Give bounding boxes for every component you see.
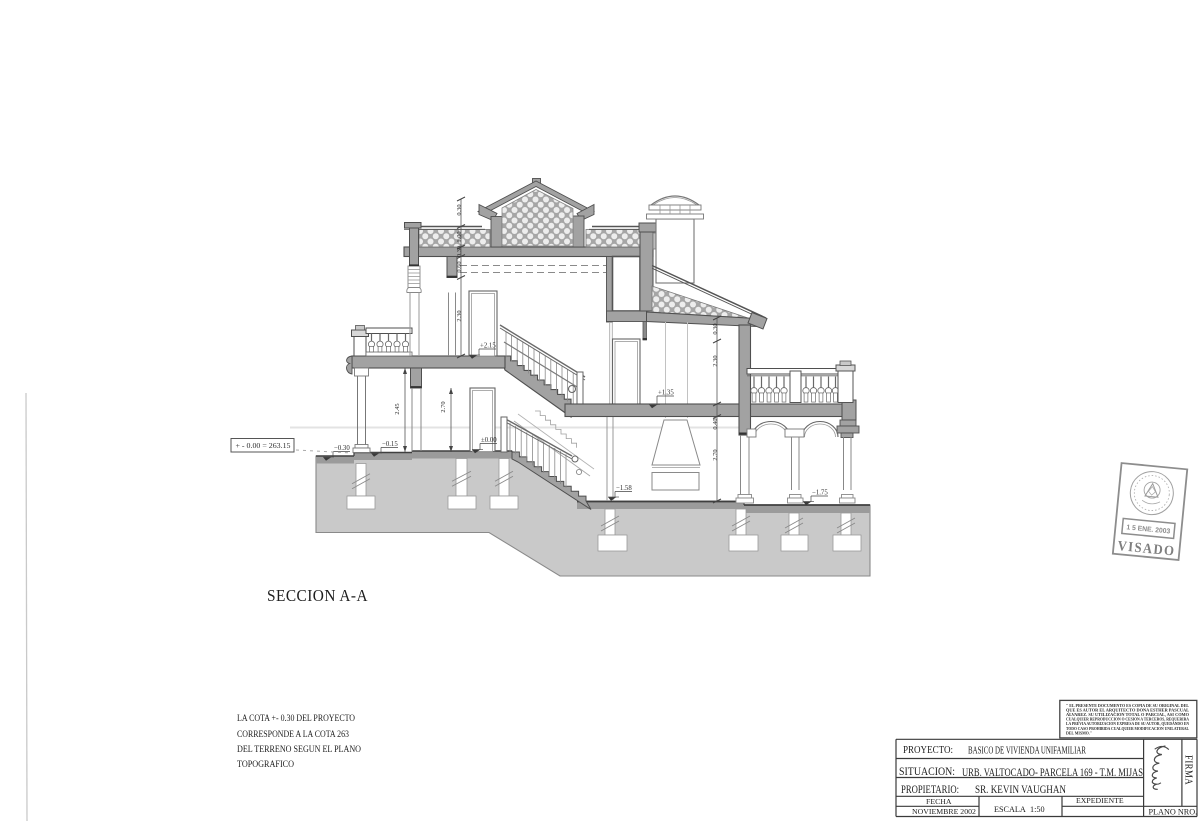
- svg-text:PROPIETARIO:: PROPIETARIO:: [901, 784, 959, 796]
- svg-text:ALVAREZ. SU UTILIZACION TOT: ALVAREZ. SU UTILIZACION TOTAL O PARCIAL,…: [1066, 713, 1189, 717]
- svg-text:0.40: 0.40: [712, 418, 719, 429]
- svg-text:−0.30: −0.30: [334, 445, 350, 452]
- svg-text:2.45: 2.45: [394, 403, 401, 414]
- svg-text:FIRMA: FIRMA: [1183, 755, 1194, 785]
- svg-text:" EL PRESENTE DOCUMENTO ES: " EL PRESENTE DOCUMENTO ES COPIA DE SU O…: [1066, 704, 1189, 708]
- svg-text:CORRESPONDE A LA COTA 263: CORRESPONDE A LA COTA 263: [237, 730, 349, 740]
- svg-text:0.30: 0.30: [456, 204, 463, 215]
- svg-text:0.30: 0.30: [456, 246, 463, 257]
- svg-text:LA PREVIA AUTORIZACION EXPR: LA PREVIA AUTORIZACION EXPRESA DE SU AUT…: [1066, 722, 1189, 726]
- svg-text:FECHA: FECHA: [926, 797, 952, 806]
- svg-text:PLANO NRO.: PLANO NRO.: [1149, 808, 1198, 817]
- svg-text:2.70: 2.70: [712, 449, 719, 460]
- svg-text:±0.00: ±0.00: [481, 437, 497, 444]
- svg-text:EXPEDIENTE: EXPEDIENTE: [1076, 796, 1124, 805]
- svg-text:SR. KEVIN VAUGHAN: SR. KEVIN VAUGHAN: [975, 784, 1067, 796]
- svg-text:1.00: 1.00: [456, 231, 463, 242]
- svg-text:QUE ES AUTOR EL ARQUITECTO: QUE ES AUTOR EL ARQUITECTO DONA ESTHER P…: [1066, 709, 1189, 713]
- svg-text:−0.15: −0.15: [382, 441, 398, 448]
- svg-text:1:50: 1:50: [1030, 805, 1045, 814]
- svg-text:TODO CASO PROHIBIDA CUALQUI: TODO CASO PROHIBIDA CUALQUIER MODIFICACI…: [1066, 727, 1189, 731]
- svg-text:0.30: 0.30: [712, 323, 719, 334]
- svg-text:0.60: 0.60: [456, 261, 463, 272]
- svg-text:2.30: 2.30: [712, 355, 719, 366]
- svg-text:2.30: 2.30: [456, 310, 463, 321]
- svg-text:SECCION A-A: SECCION A-A: [267, 586, 368, 605]
- svg-text:DEL MISMO.": DEL MISMO.": [1066, 731, 1092, 735]
- svg-text:+2.15: +2.15: [480, 343, 496, 350]
- svg-text:TOPOGRAFICO: TOPOGRAFICO: [237, 760, 294, 770]
- svg-text:LA COTA +- 0.30 DEL PROYECTO: LA COTA +- 0.30 DEL PROYECTO: [237, 714, 355, 724]
- svg-text:DEL TERRENO SEGUN EL PLANO: DEL TERRENO SEGUN EL PLANO: [237, 745, 361, 755]
- svg-text:PROYECTO:: PROYECTO:: [903, 745, 953, 756]
- svg-text:2.70: 2.70: [440, 401, 447, 412]
- svg-text:BASICO DE VIVIENDA UNIFAMILI: BASICO DE VIVIENDA UNIFAMILIAR: [968, 746, 1086, 757]
- svg-text:SITUACION:: SITUACION:: [899, 764, 955, 778]
- svg-text:ESCALA: ESCALA: [994, 805, 1026, 814]
- svg-text:+ - 0.00 = 263.15: + - 0.00 = 263.15: [236, 441, 291, 450]
- svg-text:+1.35: +1.35: [658, 390, 674, 397]
- svg-text:−1.75: −1.75: [812, 490, 828, 497]
- svg-text:−1.58: −1.58: [616, 485, 632, 492]
- svg-text:NOVIEMBRE 2002: NOVIEMBRE 2002: [912, 807, 976, 816]
- svg-text:CUALQUIER REPRODUCCION O CE: CUALQUIER REPRODUCCION O CESION A TERCER…: [1066, 718, 1189, 722]
- svg-text:URB. VALTOCADO- PARCELA 169 -: URB. VALTOCADO- PARCELA 169 - T.M. MIJAS: [962, 767, 1143, 779]
